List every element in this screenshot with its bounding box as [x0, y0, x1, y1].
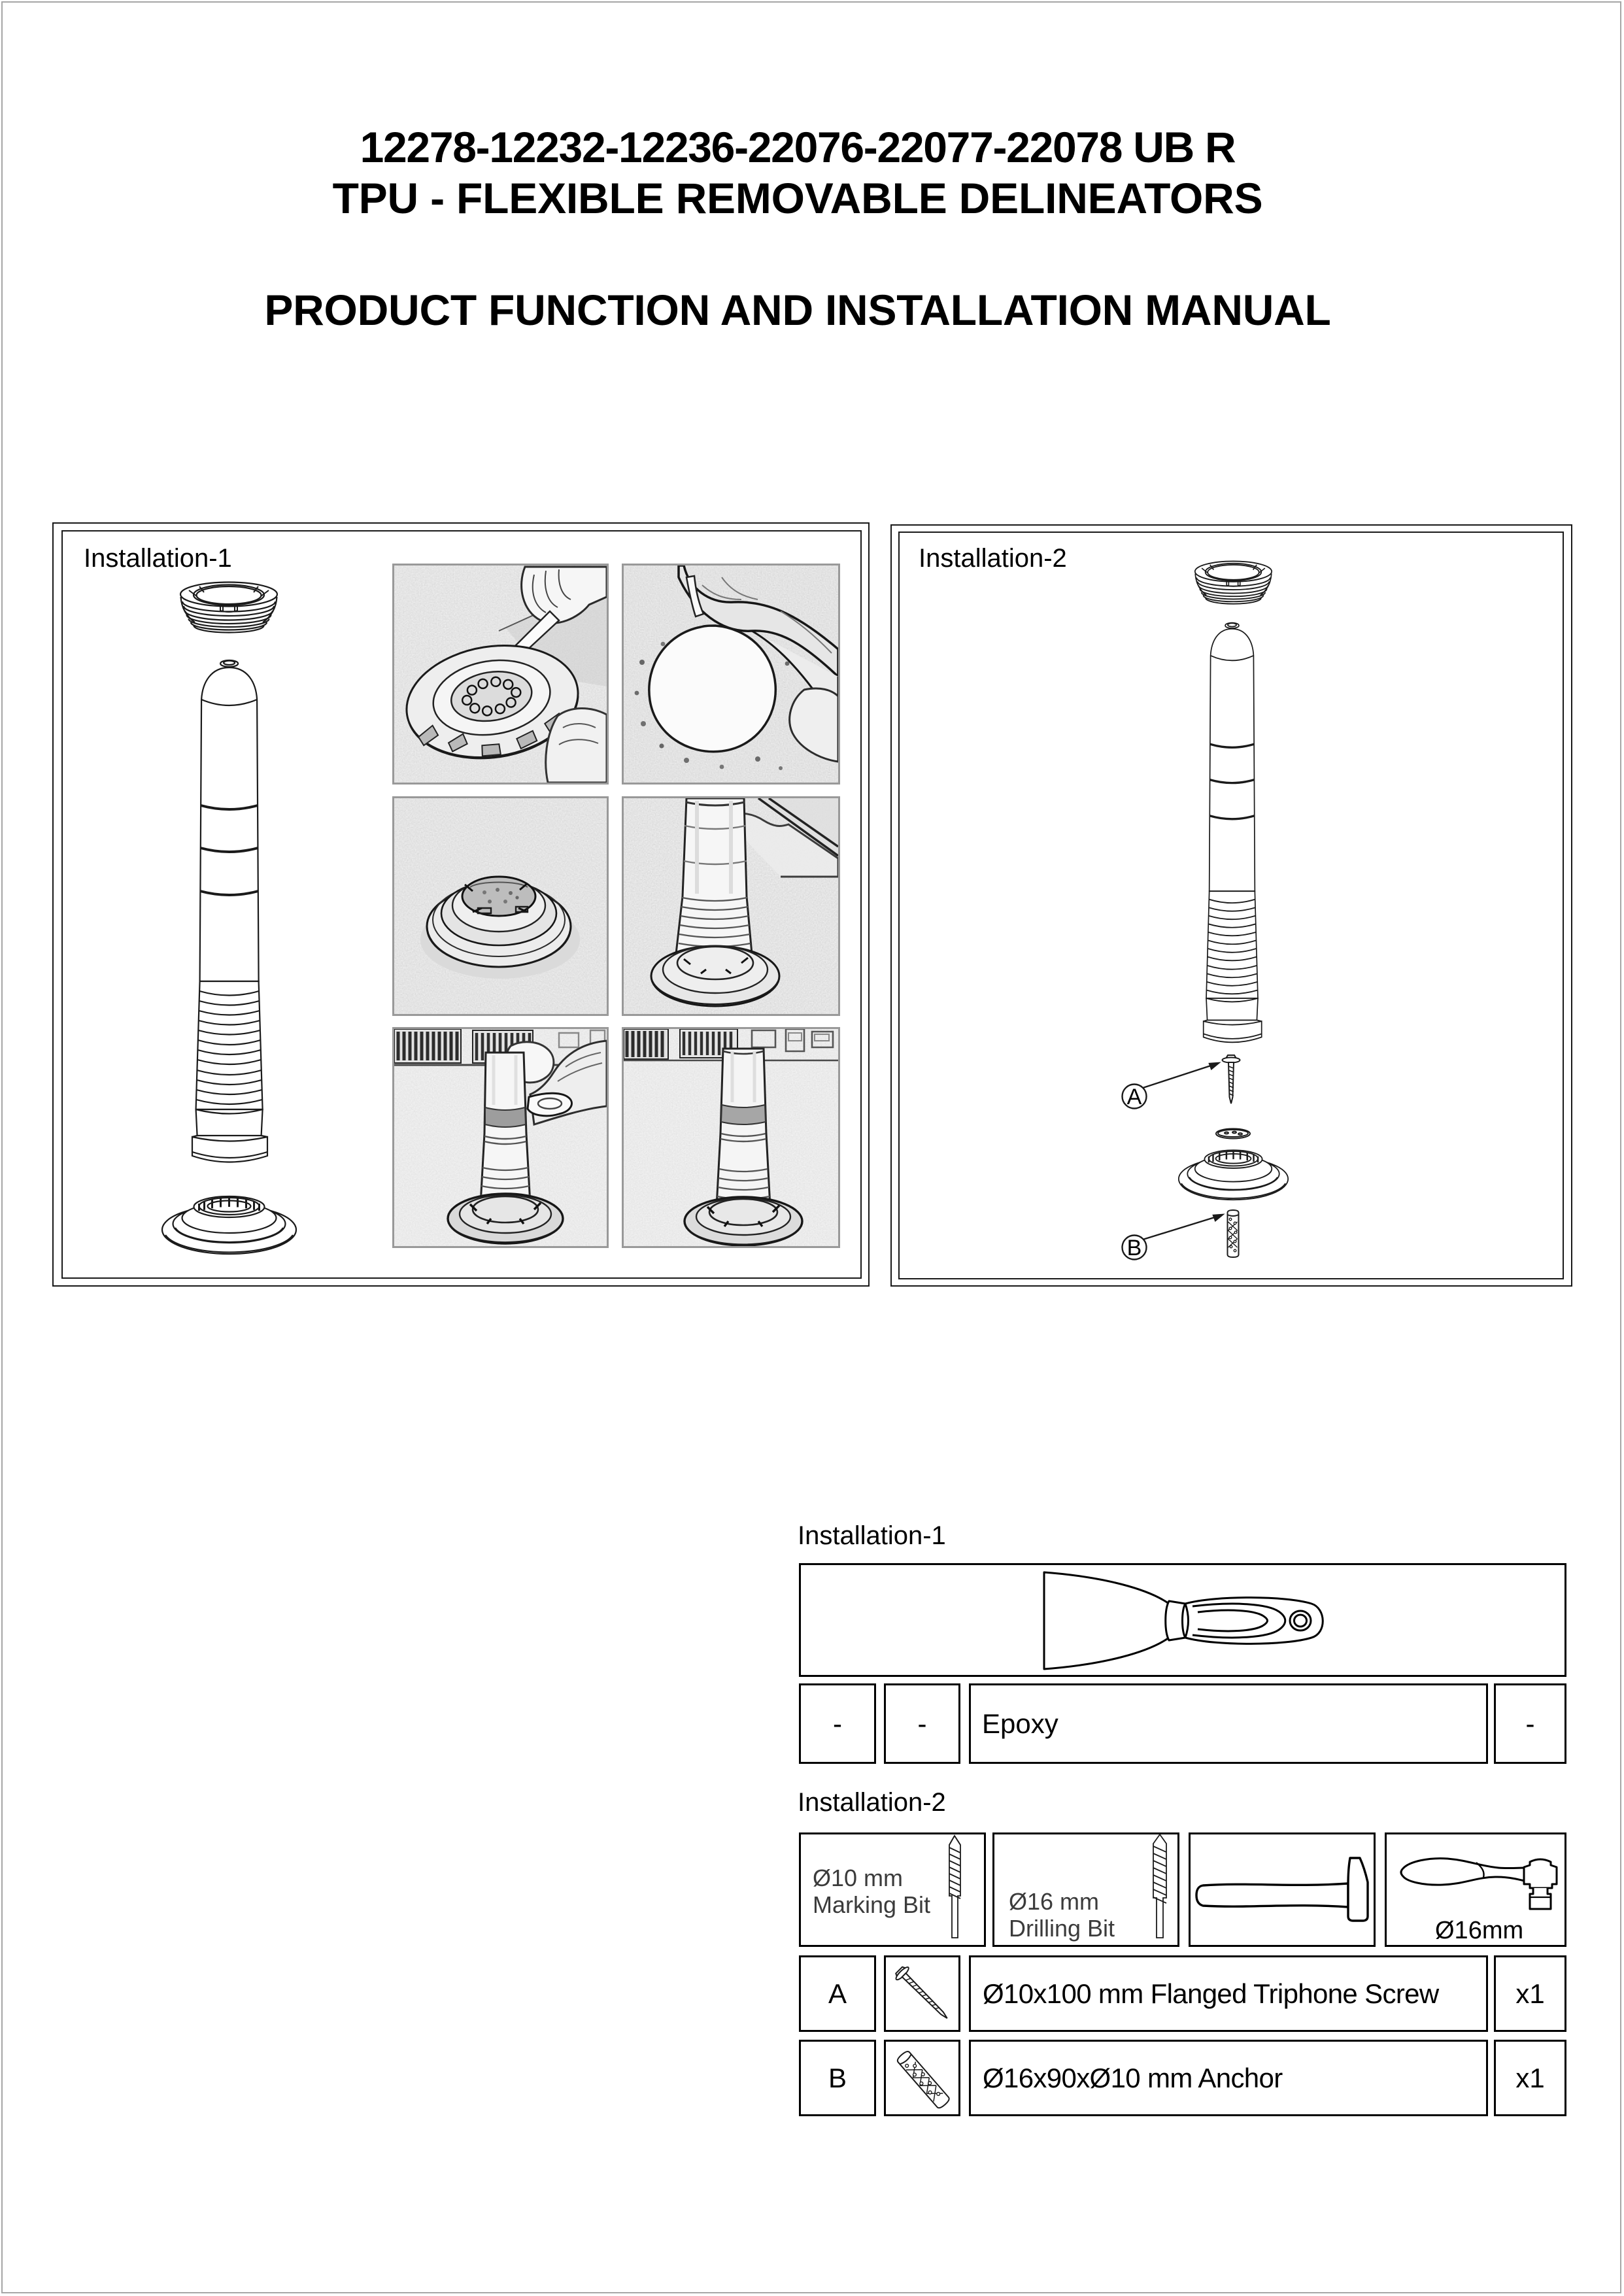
svg-text:B: B [1127, 1236, 1142, 1260]
svg-text:A: A [1127, 1085, 1142, 1109]
